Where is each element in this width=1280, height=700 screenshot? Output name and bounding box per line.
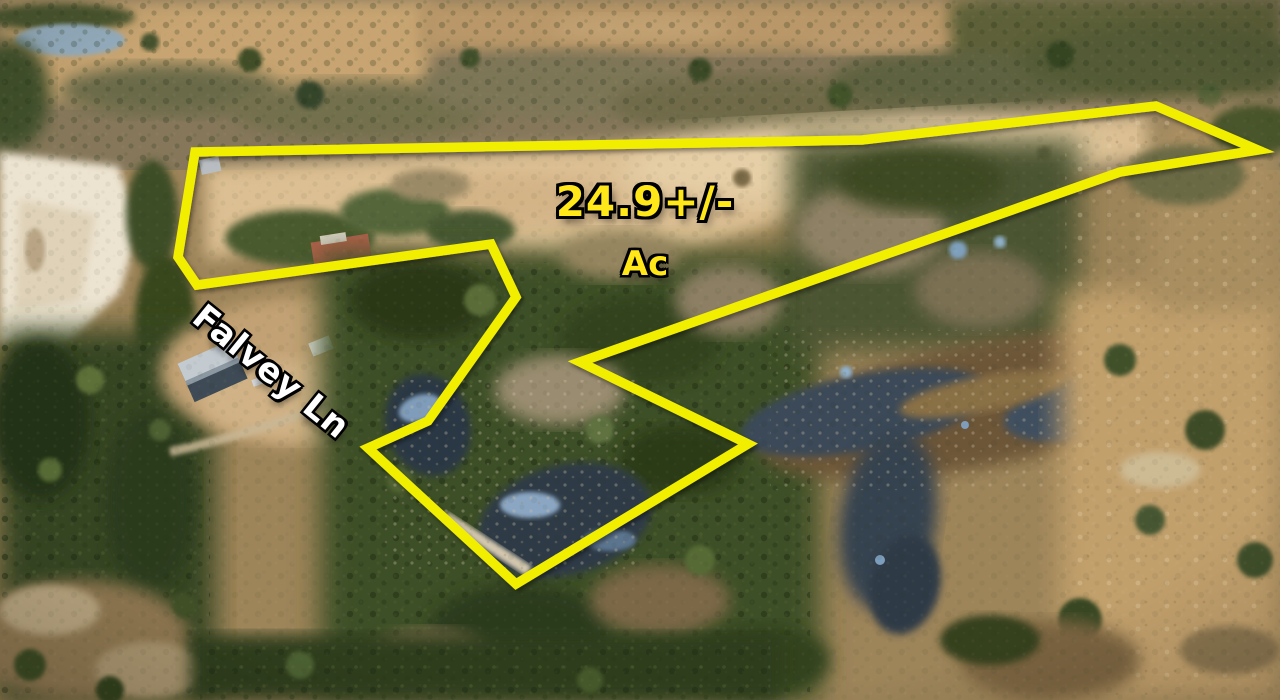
acreage-value: 24.9+/-: [540, 181, 750, 223]
acreage-label: 24.9+/- Ac: [540, 181, 750, 281]
aerial-photo: 24.9+/- Ac Falvey Ln: [0, 0, 1280, 700]
vignette: [0, 0, 1280, 700]
aerial-photo-scene: [0, 0, 1280, 700]
acreage-unit: Ac: [540, 247, 750, 281]
